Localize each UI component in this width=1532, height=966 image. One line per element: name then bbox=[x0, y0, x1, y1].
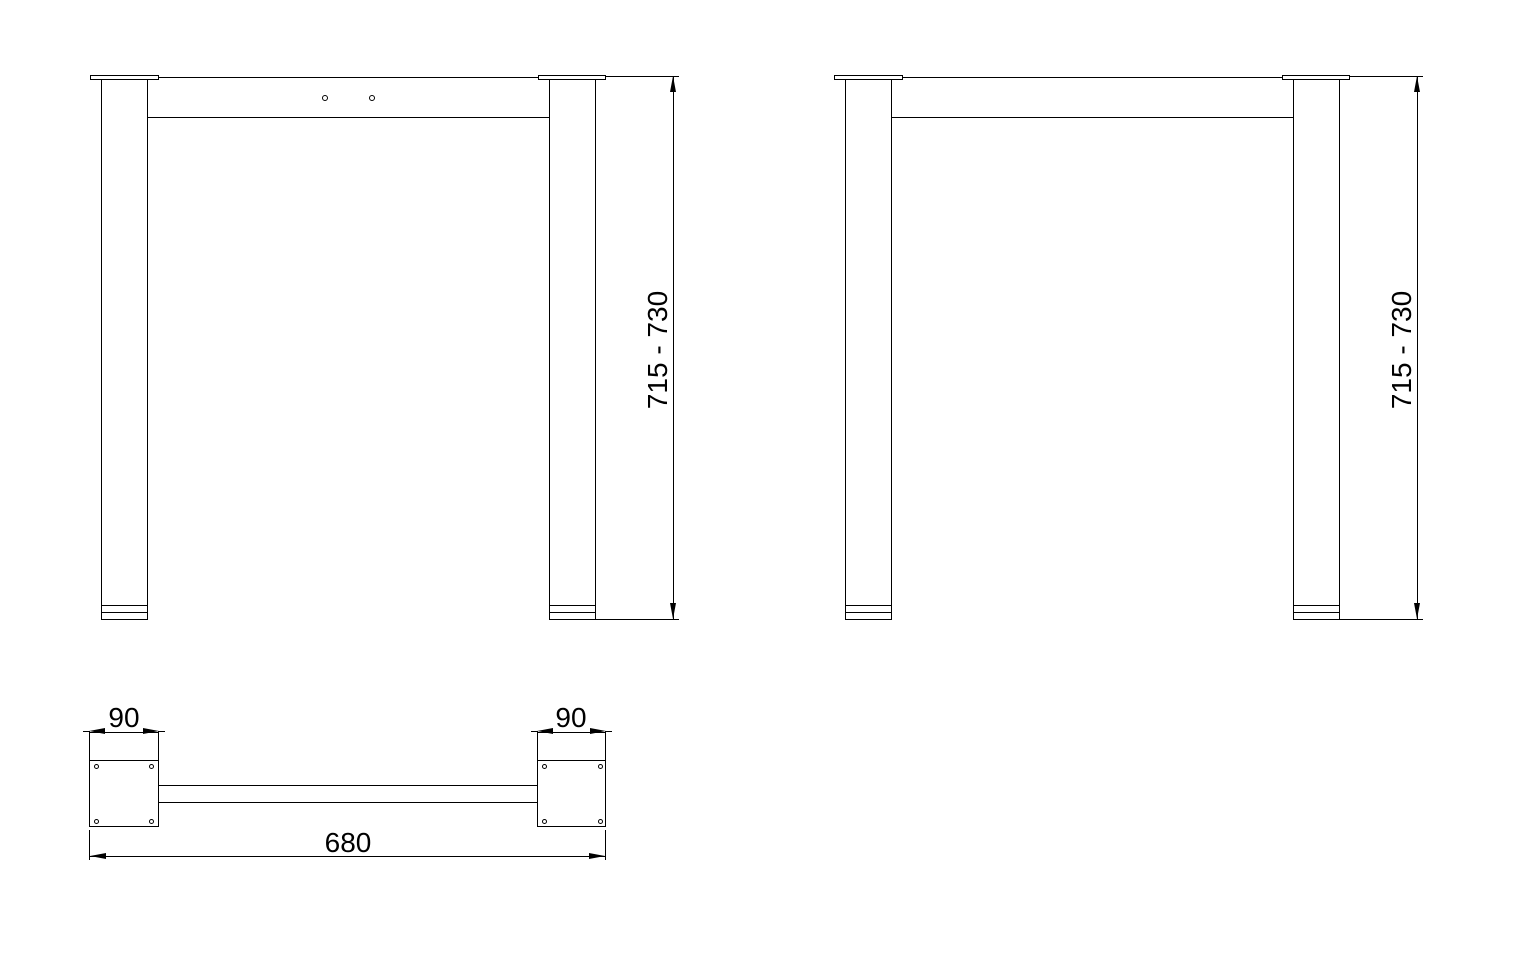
foot-adjuster-line bbox=[846, 605, 891, 606]
extension-line-bottom bbox=[1340, 619, 1423, 620]
crossbar bbox=[147, 77, 550, 118]
connecting-bar bbox=[159, 785, 537, 803]
foot-adjuster-line bbox=[550, 612, 595, 613]
dimension-arrow-right-icon bbox=[589, 853, 605, 859]
screw-hole bbox=[598, 819, 603, 824]
overall-length-dimension-label: 680 bbox=[298, 829, 398, 857]
dimension-arrow-up-icon bbox=[1414, 76, 1420, 92]
screw-hole bbox=[598, 764, 603, 769]
right-mounting-plate bbox=[537, 732, 606, 827]
screw-hole bbox=[94, 819, 99, 824]
technical-drawing-canvas: 715 - 730 715 - 730 bbox=[0, 0, 1532, 966]
plate-edge-line bbox=[538, 760, 605, 761]
left-mounting-plate bbox=[89, 732, 159, 827]
height-dimension-label: 715 - 730 bbox=[600, 292, 716, 408]
dimension-arrow-down-icon bbox=[1414, 603, 1420, 619]
screw-hole bbox=[542, 819, 547, 824]
height-dimension-label: 715 - 730 bbox=[1344, 292, 1460, 408]
extension-line-top bbox=[1350, 76, 1423, 77]
extension-line-bottom bbox=[596, 619, 679, 620]
right-leg bbox=[1293, 77, 1340, 620]
dimension-stub bbox=[158, 731, 165, 732]
foot-adjuster-line bbox=[550, 605, 595, 606]
right-leg-flange bbox=[1282, 75, 1350, 80]
mounting-hole bbox=[369, 95, 375, 101]
screw-hole bbox=[149, 819, 154, 824]
mounting-hole bbox=[322, 95, 328, 101]
left-leg-flange bbox=[90, 75, 159, 80]
dimension-arrow-up-icon bbox=[670, 76, 676, 92]
screw-hole bbox=[149, 764, 154, 769]
screw-hole bbox=[542, 764, 547, 769]
left-leg bbox=[845, 77, 892, 620]
extension-line-top bbox=[606, 76, 679, 77]
right-leg bbox=[549, 77, 596, 620]
left-leg bbox=[101, 77, 148, 620]
plate-width-dimension-label: 90 bbox=[541, 704, 601, 732]
foot-adjuster-line bbox=[1294, 605, 1339, 606]
plate-width-dimension-label: 90 bbox=[94, 704, 154, 732]
dimension-stub bbox=[605, 731, 612, 732]
right-leg-flange bbox=[538, 75, 606, 80]
plate-edge-line bbox=[90, 760, 158, 761]
crossbar bbox=[891, 77, 1294, 118]
dimension-arrow-down-icon bbox=[670, 603, 676, 619]
foot-adjuster-line bbox=[102, 605, 147, 606]
left-leg-flange bbox=[834, 75, 903, 80]
screw-hole bbox=[94, 764, 99, 769]
foot-adjuster-line bbox=[1294, 612, 1339, 613]
dimension-arrow-left-icon bbox=[90, 853, 106, 859]
foot-adjuster-line bbox=[102, 612, 147, 613]
foot-adjuster-line bbox=[846, 612, 891, 613]
